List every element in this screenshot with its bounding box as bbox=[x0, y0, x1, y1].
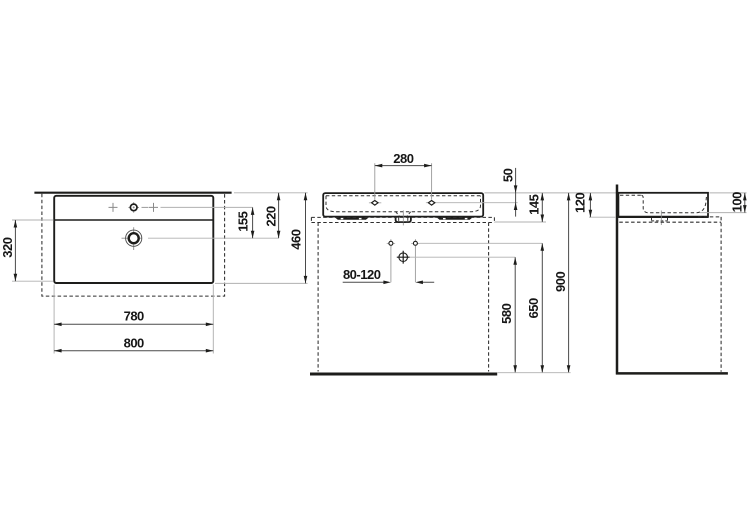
svg-text:100: 100 bbox=[730, 192, 745, 212]
svg-text:280: 280 bbox=[393, 151, 413, 166]
svg-text:80-120: 80-120 bbox=[343, 267, 381, 282]
svg-text:780: 780 bbox=[124, 308, 144, 323]
svg-text:650: 650 bbox=[526, 298, 541, 318]
svg-text:120: 120 bbox=[573, 193, 588, 213]
svg-text:220: 220 bbox=[263, 206, 278, 226]
svg-text:900: 900 bbox=[553, 272, 568, 292]
svg-text:145: 145 bbox=[527, 194, 542, 214]
svg-text:800: 800 bbox=[124, 335, 144, 350]
svg-text:320: 320 bbox=[0, 237, 15, 257]
svg-text:580: 580 bbox=[499, 303, 514, 323]
svg-text:50: 50 bbox=[500, 168, 515, 182]
svg-text:460: 460 bbox=[288, 229, 303, 249]
svg-text:155: 155 bbox=[235, 211, 250, 231]
